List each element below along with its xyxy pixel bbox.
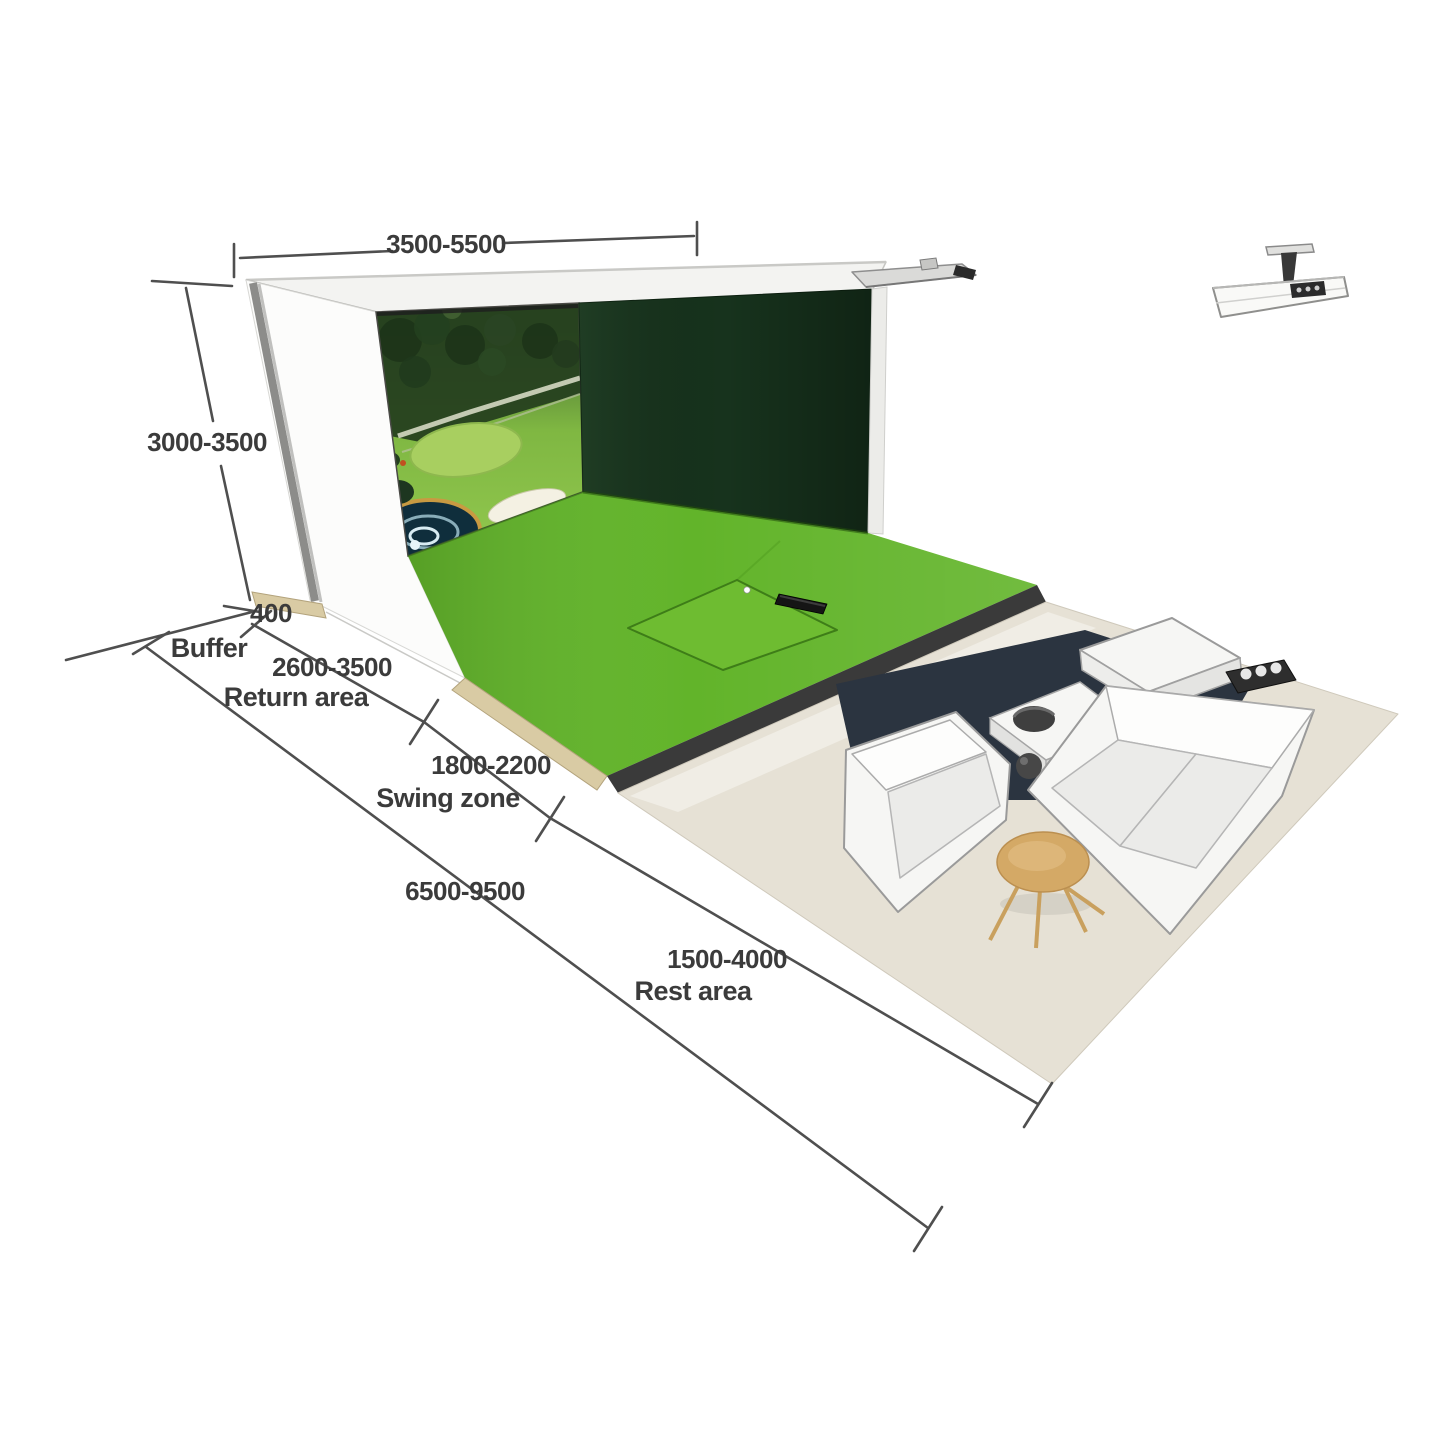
height-dimension: 3000-3500	[147, 427, 267, 457]
total-dimension: 6500-9500	[405, 876, 525, 906]
return-label: Return area	[224, 682, 370, 712]
buffer-dimension: 400	[250, 598, 292, 628]
rest-dimension: 1500-4000	[667, 944, 787, 974]
swing-label: Swing zone	[376, 783, 520, 813]
golf-ball	[744, 587, 750, 593]
diagram-scene: 3500-5500 3000-3500 400 Buffer 2600-3500…	[0, 0, 1445, 1445]
rest-label: Rest area	[634, 976, 753, 1006]
decor-pot	[1016, 753, 1042, 779]
return-dimension: 2600-3500	[272, 652, 392, 682]
golf-simulator-room-diagram: 3500-5500 3000-3500 400 Buffer 2600-3500…	[0, 0, 1445, 1445]
rail-sensor-knob	[920, 258, 938, 270]
buffer-label: Buffer	[171, 633, 248, 663]
width-dimension: 3500-5500	[386, 229, 506, 259]
swing-dimension: 1800-2200	[431, 750, 551, 780]
ceiling-projector	[1213, 244, 1348, 317]
